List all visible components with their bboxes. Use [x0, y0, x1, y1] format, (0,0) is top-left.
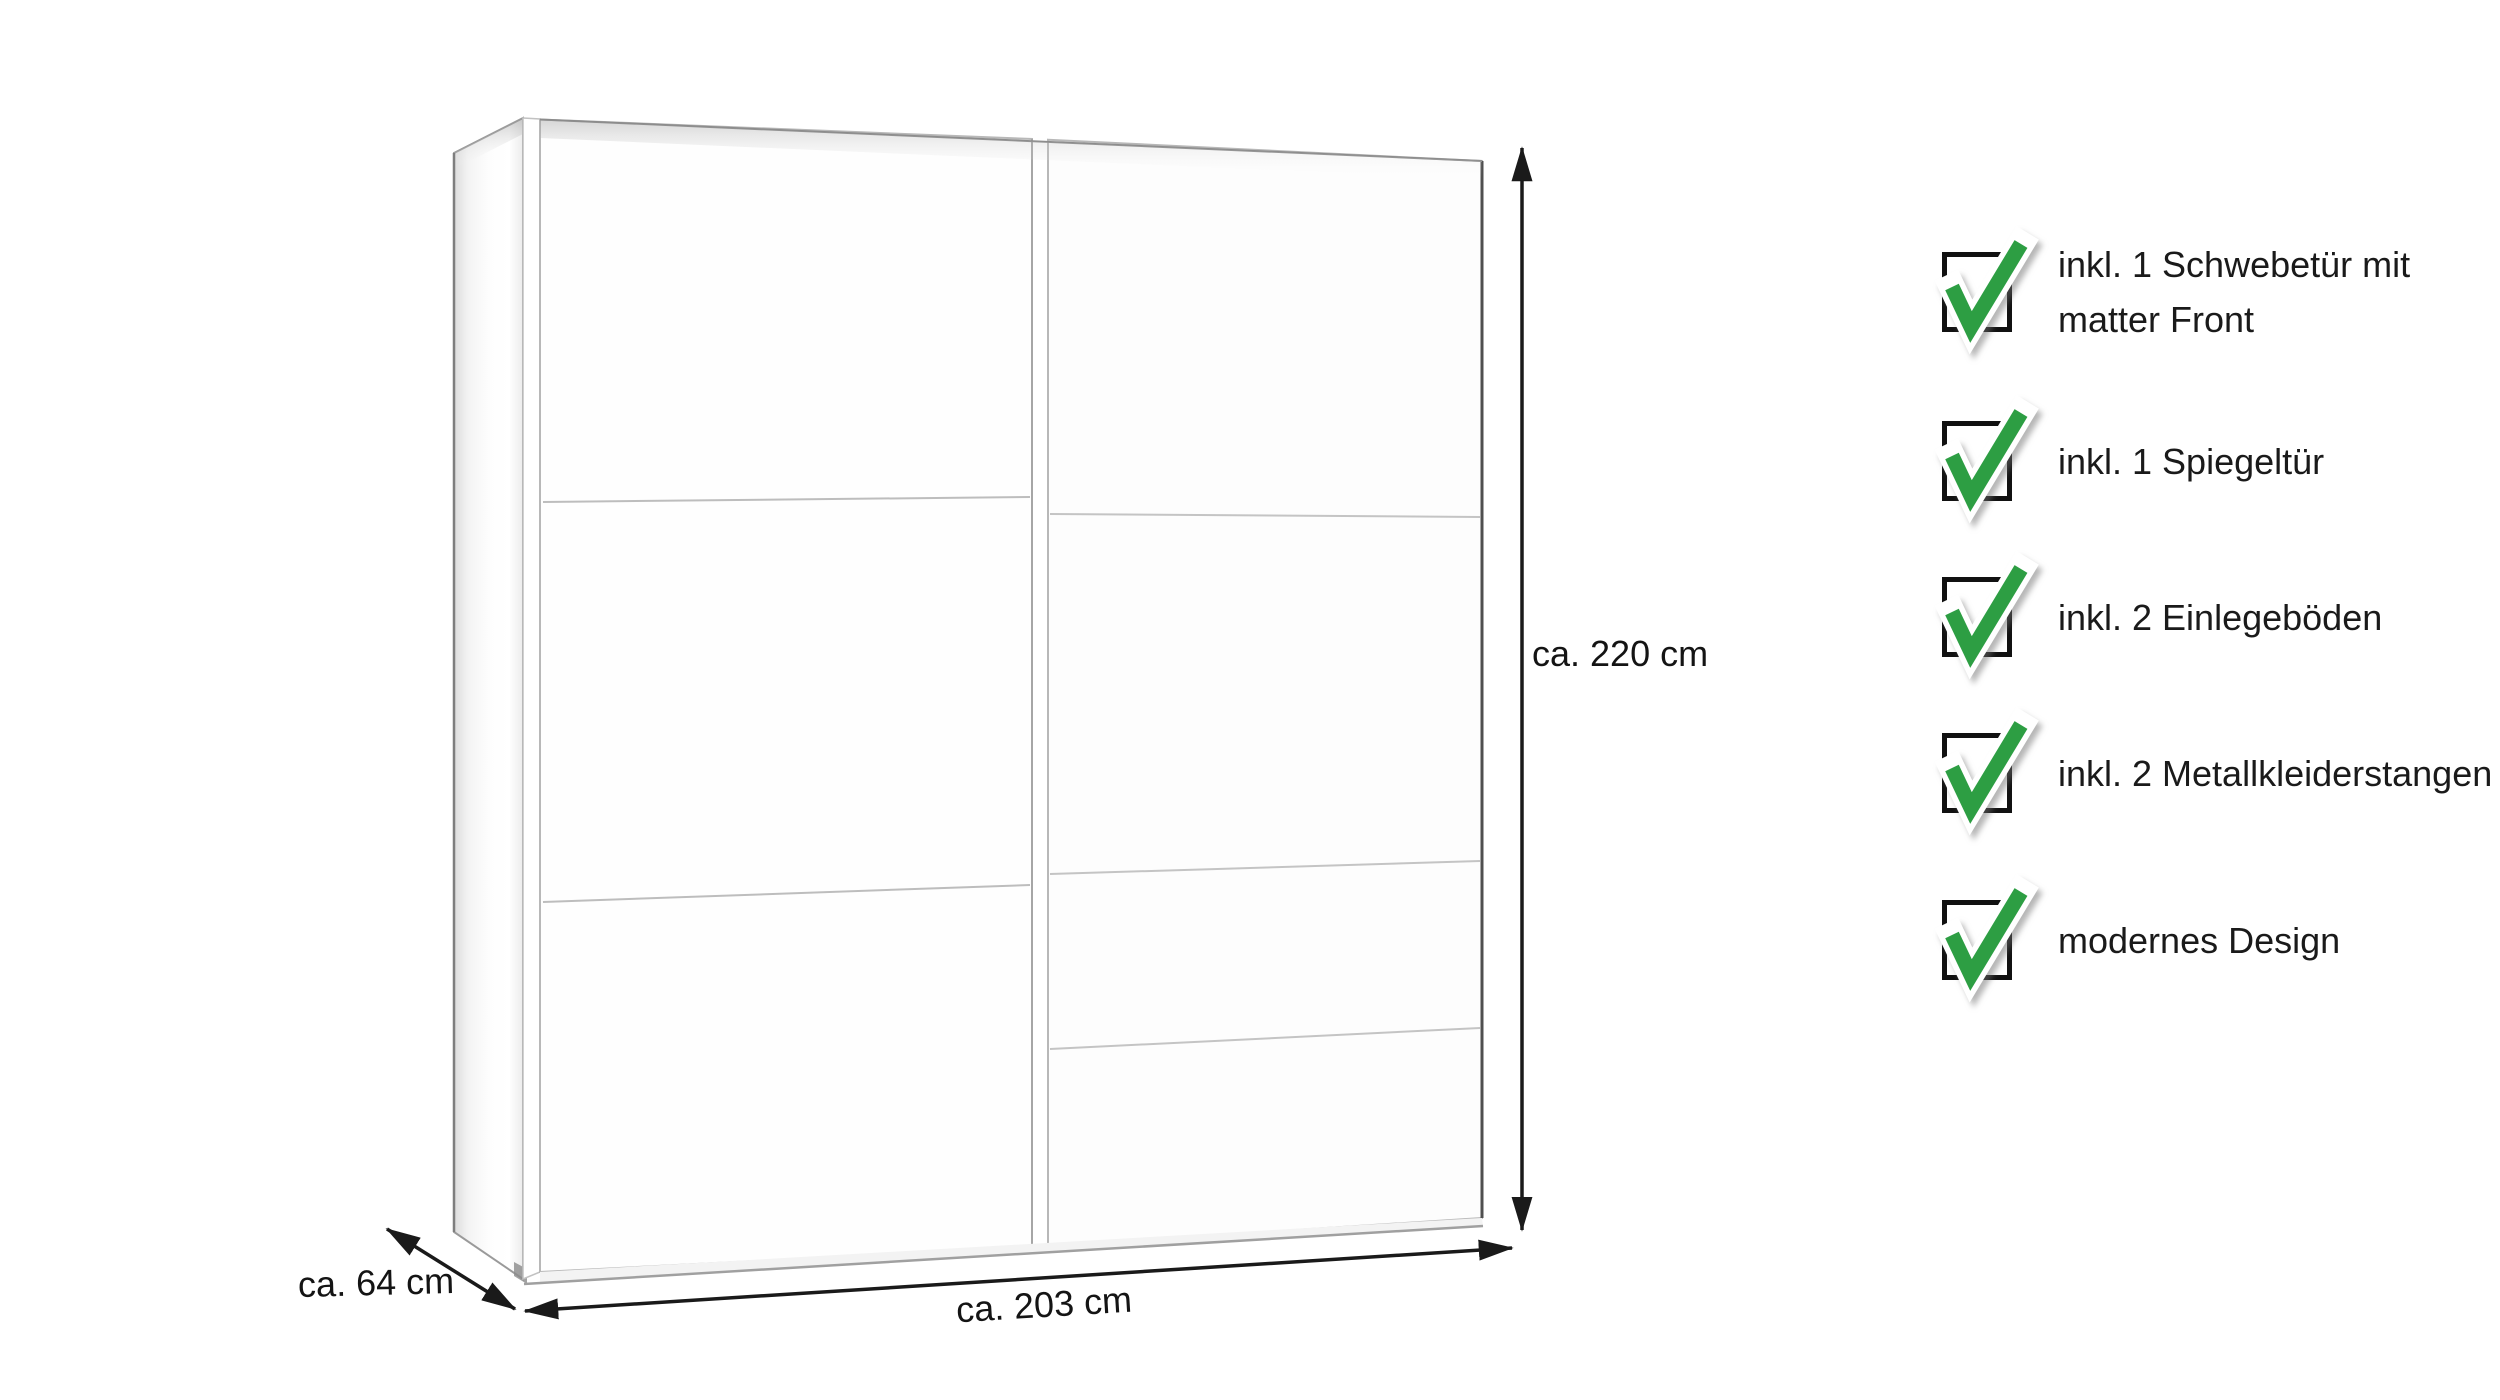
- feature-checkbox: [1942, 900, 2012, 980]
- wardrobe-left-door: [540, 120, 1032, 1273]
- feature-label: modernes Design: [2058, 913, 2500, 968]
- feature-checkbox: [1942, 733, 2012, 813]
- feature-item-einlegeboeden: inkl. 2 Einlegeböden: [1942, 577, 2500, 657]
- feature-checkbox: [1942, 421, 2012, 501]
- feature-label: inkl. 1 Spiegeltür: [2058, 434, 2500, 489]
- checkmark-icon: [1940, 878, 2036, 998]
- feature-item-design: modernes Design: [1942, 900, 2500, 980]
- wardrobe-side-panel: [454, 118, 527, 1284]
- checkmark-icon: [1940, 399, 2036, 519]
- checkmark-icon: [1940, 230, 2036, 350]
- feature-label: inkl. 2 Metallkleiderstangen: [2058, 746, 2500, 801]
- feature-item-spiegeltuer: inkl. 1 Spiegeltür: [1942, 421, 2500, 501]
- feature-checkbox: [1942, 577, 2012, 657]
- wardrobe-illustration: [0, 0, 2500, 1400]
- feature-label: inkl. 1 Schwebetür mit matter Front: [2058, 237, 2500, 347]
- checkmark-icon: [1940, 711, 2036, 831]
- feature-label: inkl. 2 Einlegeböden: [2058, 590, 2500, 645]
- feature-item-kleiderstangen: inkl. 2 Metallkleiderstangen: [1942, 733, 2500, 813]
- feature-item-schwebetuer: inkl. 1 Schwebetür mit matter Front: [1942, 252, 2500, 332]
- product-dimension-diagram: ca. 220 cm ca. 203 cm ca. 64 cm inkl. 1 …: [0, 0, 2500, 1400]
- wardrobe-front-frame: [523, 118, 540, 1279]
- checkmark-icon: [1940, 555, 2036, 675]
- wardrobe-door-divider: [1032, 139, 1048, 1247]
- depth-dimension-label: ca. 64 cm: [288, 1263, 465, 1304]
- feature-checkbox: [1942, 252, 2012, 332]
- wardrobe-right-door: [1048, 140, 1482, 1246]
- height-dimension-label: ca. 220 cm: [1532, 636, 1708, 672]
